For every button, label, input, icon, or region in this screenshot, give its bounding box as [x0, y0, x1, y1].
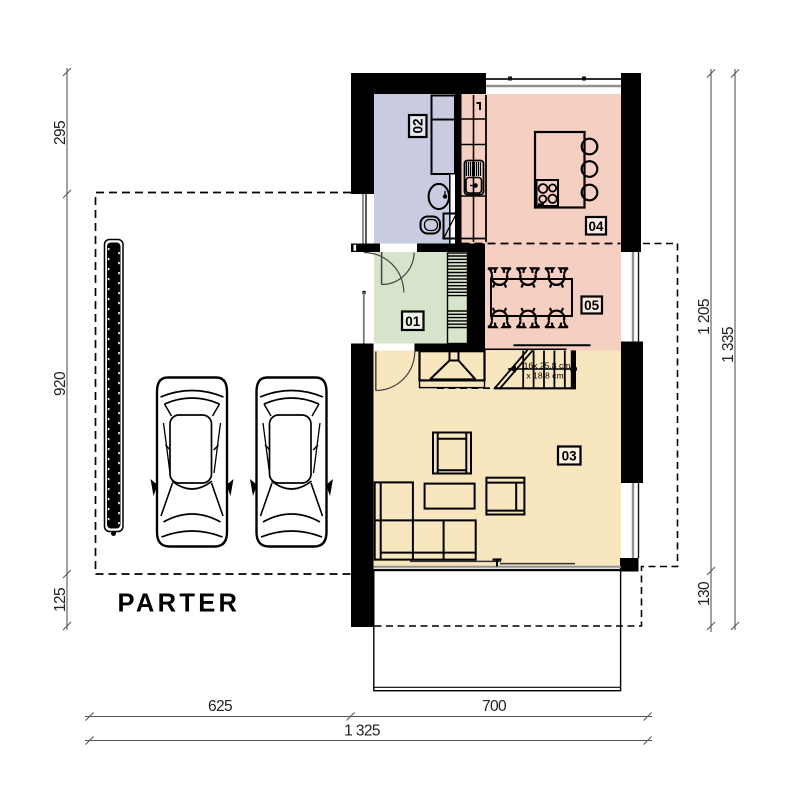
- svg-text:05: 05: [584, 298, 600, 313]
- svg-text:295: 295: [52, 121, 69, 145]
- svg-text:04: 04: [588, 219, 604, 234]
- svg-text:03: 03: [562, 449, 578, 464]
- svg-text:x 18.8 cm: x 18.8 cm: [526, 371, 563, 381]
- svg-text:1 205: 1 205: [696, 299, 713, 335]
- svg-text:625: 625: [208, 698, 232, 715]
- svg-text:02: 02: [411, 118, 426, 133]
- svg-text:125: 125: [52, 588, 69, 612]
- svg-text:700: 700: [482, 698, 507, 715]
- svg-text:1 325: 1 325: [344, 723, 380, 740]
- svg-text:920: 920: [52, 371, 69, 396]
- svg-text:16x 25.8 cm: 16x 25.8 cm: [524, 361, 571, 371]
- svg-text:1 335: 1 335: [720, 327, 737, 363]
- svg-text:PARTER: PARTER: [118, 590, 241, 618]
- svg-text:130: 130: [696, 581, 713, 606]
- svg-text:01: 01: [405, 314, 421, 329]
